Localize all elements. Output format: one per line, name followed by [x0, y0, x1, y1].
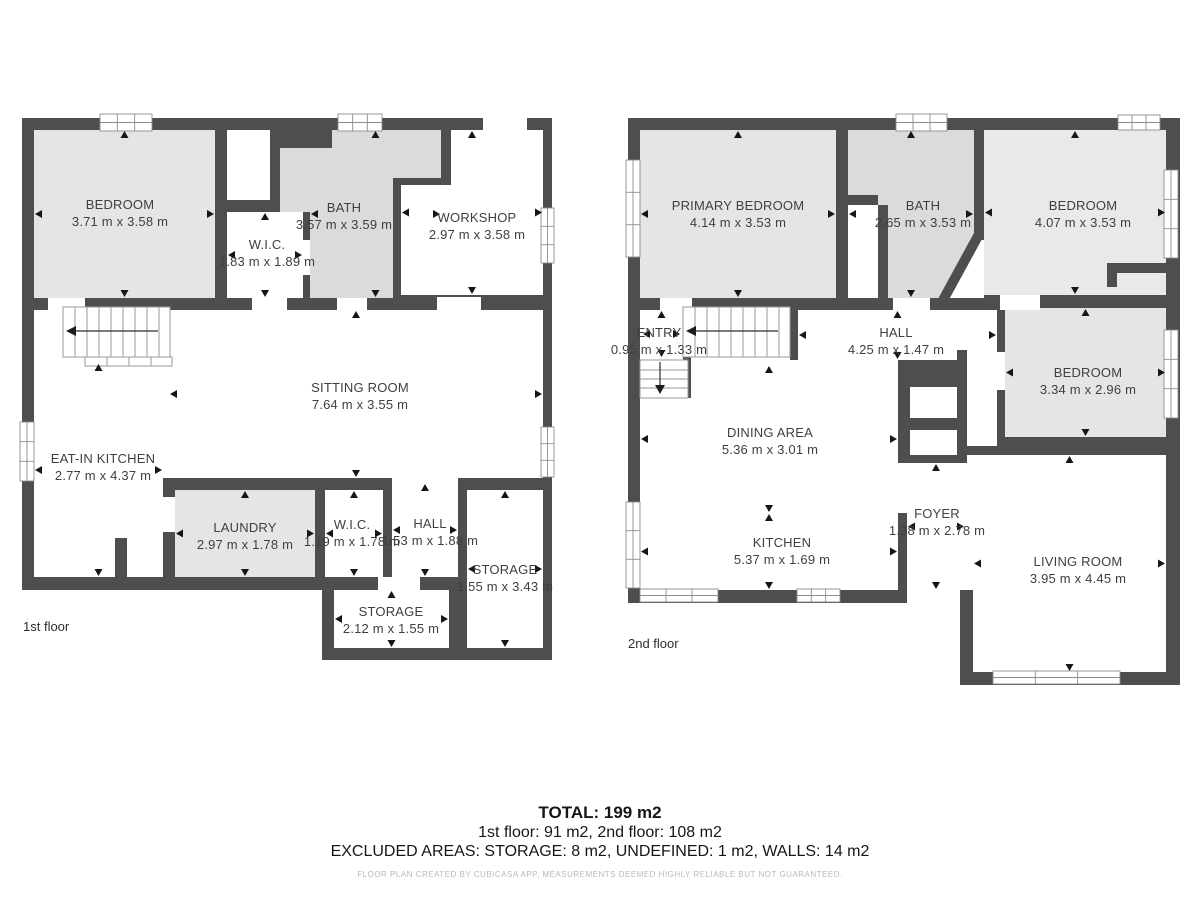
summary-excluded-areas: EXCLUDED AREAS: STORAGE: 8 m2, UNDEFINED…: [0, 843, 1200, 861]
room-name: HALL: [382, 515, 478, 532]
summary-floors: 1st floor: 91 m2, 2nd floor: 108 m2: [0, 824, 1200, 842]
room-dims: 1.83 m x 1.89 m: [219, 253, 315, 270]
room-dims: 5.36 m x 3.01 m: [722, 441, 818, 458]
room-dims: 4.14 m x 3.53 m: [672, 214, 805, 231]
room-name: EAT-IN KITCHEN: [51, 450, 155, 467]
room-dims: 7.64 m x 3.55 m: [311, 396, 409, 413]
footer-disclaimer: FLOOR PLAN CREATED BY CUBICASA APP, MEAS…: [0, 870, 1200, 879]
room-dims: 3.57 m x 3.59 m: [296, 216, 392, 233]
room-label-hall-f1: HALL 1.53 m x 1.88 m: [382, 515, 478, 549]
room-dims: 3.34 m x 2.96 m: [1040, 381, 1136, 398]
room-label-foyer-f2: FOYER 1.38 m x 2.78 m: [889, 505, 985, 539]
room-name: BEDROOM: [72, 196, 168, 213]
floor2-caption: 2nd floor: [628, 636, 679, 651]
room-label-sitting-room-f1: SITTING ROOM 7.64 m x 3.55 m: [311, 379, 409, 413]
room-name: DINING AREA: [722, 424, 818, 441]
room-label-bath-f1: BATH 3.57 m x 3.59 m: [296, 199, 392, 233]
room-name: SITTING ROOM: [311, 379, 409, 396]
room-dims: 1.55 m x 3.43 m: [457, 578, 553, 595]
room-dims: 4.25 m x 1.47 m: [848, 341, 944, 358]
room-label-bedroom-f1: BEDROOM 3.71 m x 3.58 m: [72, 196, 168, 230]
room-label-hall-f2: HALL 4.25 m x 1.47 m: [848, 324, 944, 358]
room-label-living-room-f2: LIVING ROOM 3.95 m x 4.45 m: [1030, 553, 1126, 587]
room-label-eat-in-kitchen-f1: EAT-IN KITCHEN 2.77 m x 4.37 m: [51, 450, 155, 484]
room-name: STORAGE: [457, 561, 553, 578]
room-name: BATH: [296, 199, 392, 216]
room-label-laundry-f1: LAUNDRY 2.97 m x 1.78 m: [197, 519, 293, 553]
room-dims: 1.53 m x 1.88 m: [382, 532, 478, 549]
room-dims: 0.95 m x 1.33 m: [611, 341, 707, 358]
room-label-kitchen-f2: KITCHEN 5.37 m x 1.69 m: [734, 534, 830, 568]
floor1-caption: 1st floor: [23, 619, 69, 634]
room-dims: 4.07 m x 3.53 m: [1035, 214, 1131, 231]
room-dims: 2.65 m x 3.53 m: [875, 214, 971, 231]
room-name: ENTRY: [611, 324, 707, 341]
room-label-storage-right-f1: STORAGE 1.55 m x 3.43 m: [457, 561, 553, 595]
room-label-primary-bedroom-f2: PRIMARY BEDROOM 4.14 m x 3.53 m: [672, 197, 805, 231]
room-dims: 5.37 m x 1.69 m: [734, 551, 830, 568]
room-name: FOYER: [889, 505, 985, 522]
room-label-workshop-f1: WORKSHOP 2.97 m x 3.58 m: [429, 209, 525, 243]
room-label-bedroom-right-f2: BEDROOM 3.34 m x 2.96 m: [1040, 364, 1136, 398]
room-dims: 2.77 m x 4.37 m: [51, 467, 155, 484]
room-label-dining-area-f2: DINING AREA 5.36 m x 3.01 m: [722, 424, 818, 458]
room-name: BATH: [875, 197, 971, 214]
room-name: W.I.C.: [219, 236, 315, 253]
room-name: WORKSHOP: [429, 209, 525, 226]
room-name: BEDROOM: [1035, 197, 1131, 214]
room-label-entry-f2: ENTRY 0.95 m x 1.33 m: [611, 324, 707, 358]
room-dims: 3.95 m x 4.45 m: [1030, 570, 1126, 587]
room-name: BEDROOM: [1040, 364, 1136, 381]
room-label-bedroom-top-right-f2: BEDROOM 4.07 m x 3.53 m: [1035, 197, 1131, 231]
room-dims: 3.71 m x 3.58 m: [72, 213, 168, 230]
room-dims: 2.97 m x 3.58 m: [429, 226, 525, 243]
floor-plan-drawing: [0, 0, 1200, 900]
room-label-storage-bottom-f1: STORAGE 2.12 m x 1.55 m: [343, 603, 439, 637]
room-name: STORAGE: [343, 603, 439, 620]
room-label-wic-upper-f1: W.I.C. 1.83 m x 1.89 m: [219, 236, 315, 270]
room-dims: 2.97 m x 1.78 m: [197, 536, 293, 553]
room-label-bath-f2: BATH 2.65 m x 3.53 m: [875, 197, 971, 231]
summary-total: TOTAL: 199 m2: [0, 803, 1200, 823]
room-dims: 1.38 m x 2.78 m: [889, 522, 985, 539]
stairs-floor1-icon: [63, 307, 172, 366]
room-name: LIVING ROOM: [1030, 553, 1126, 570]
room-dims: 2.12 m x 1.55 m: [343, 620, 439, 637]
floor-plan-page: BEDROOM 3.71 m x 3.58 m W.I.C. 1.83 m x …: [0, 0, 1200, 900]
room-name: LAUNDRY: [197, 519, 293, 536]
room-name: KITCHEN: [734, 534, 830, 551]
room-name: PRIMARY BEDROOM: [672, 197, 805, 214]
room-name: HALL: [848, 324, 944, 341]
